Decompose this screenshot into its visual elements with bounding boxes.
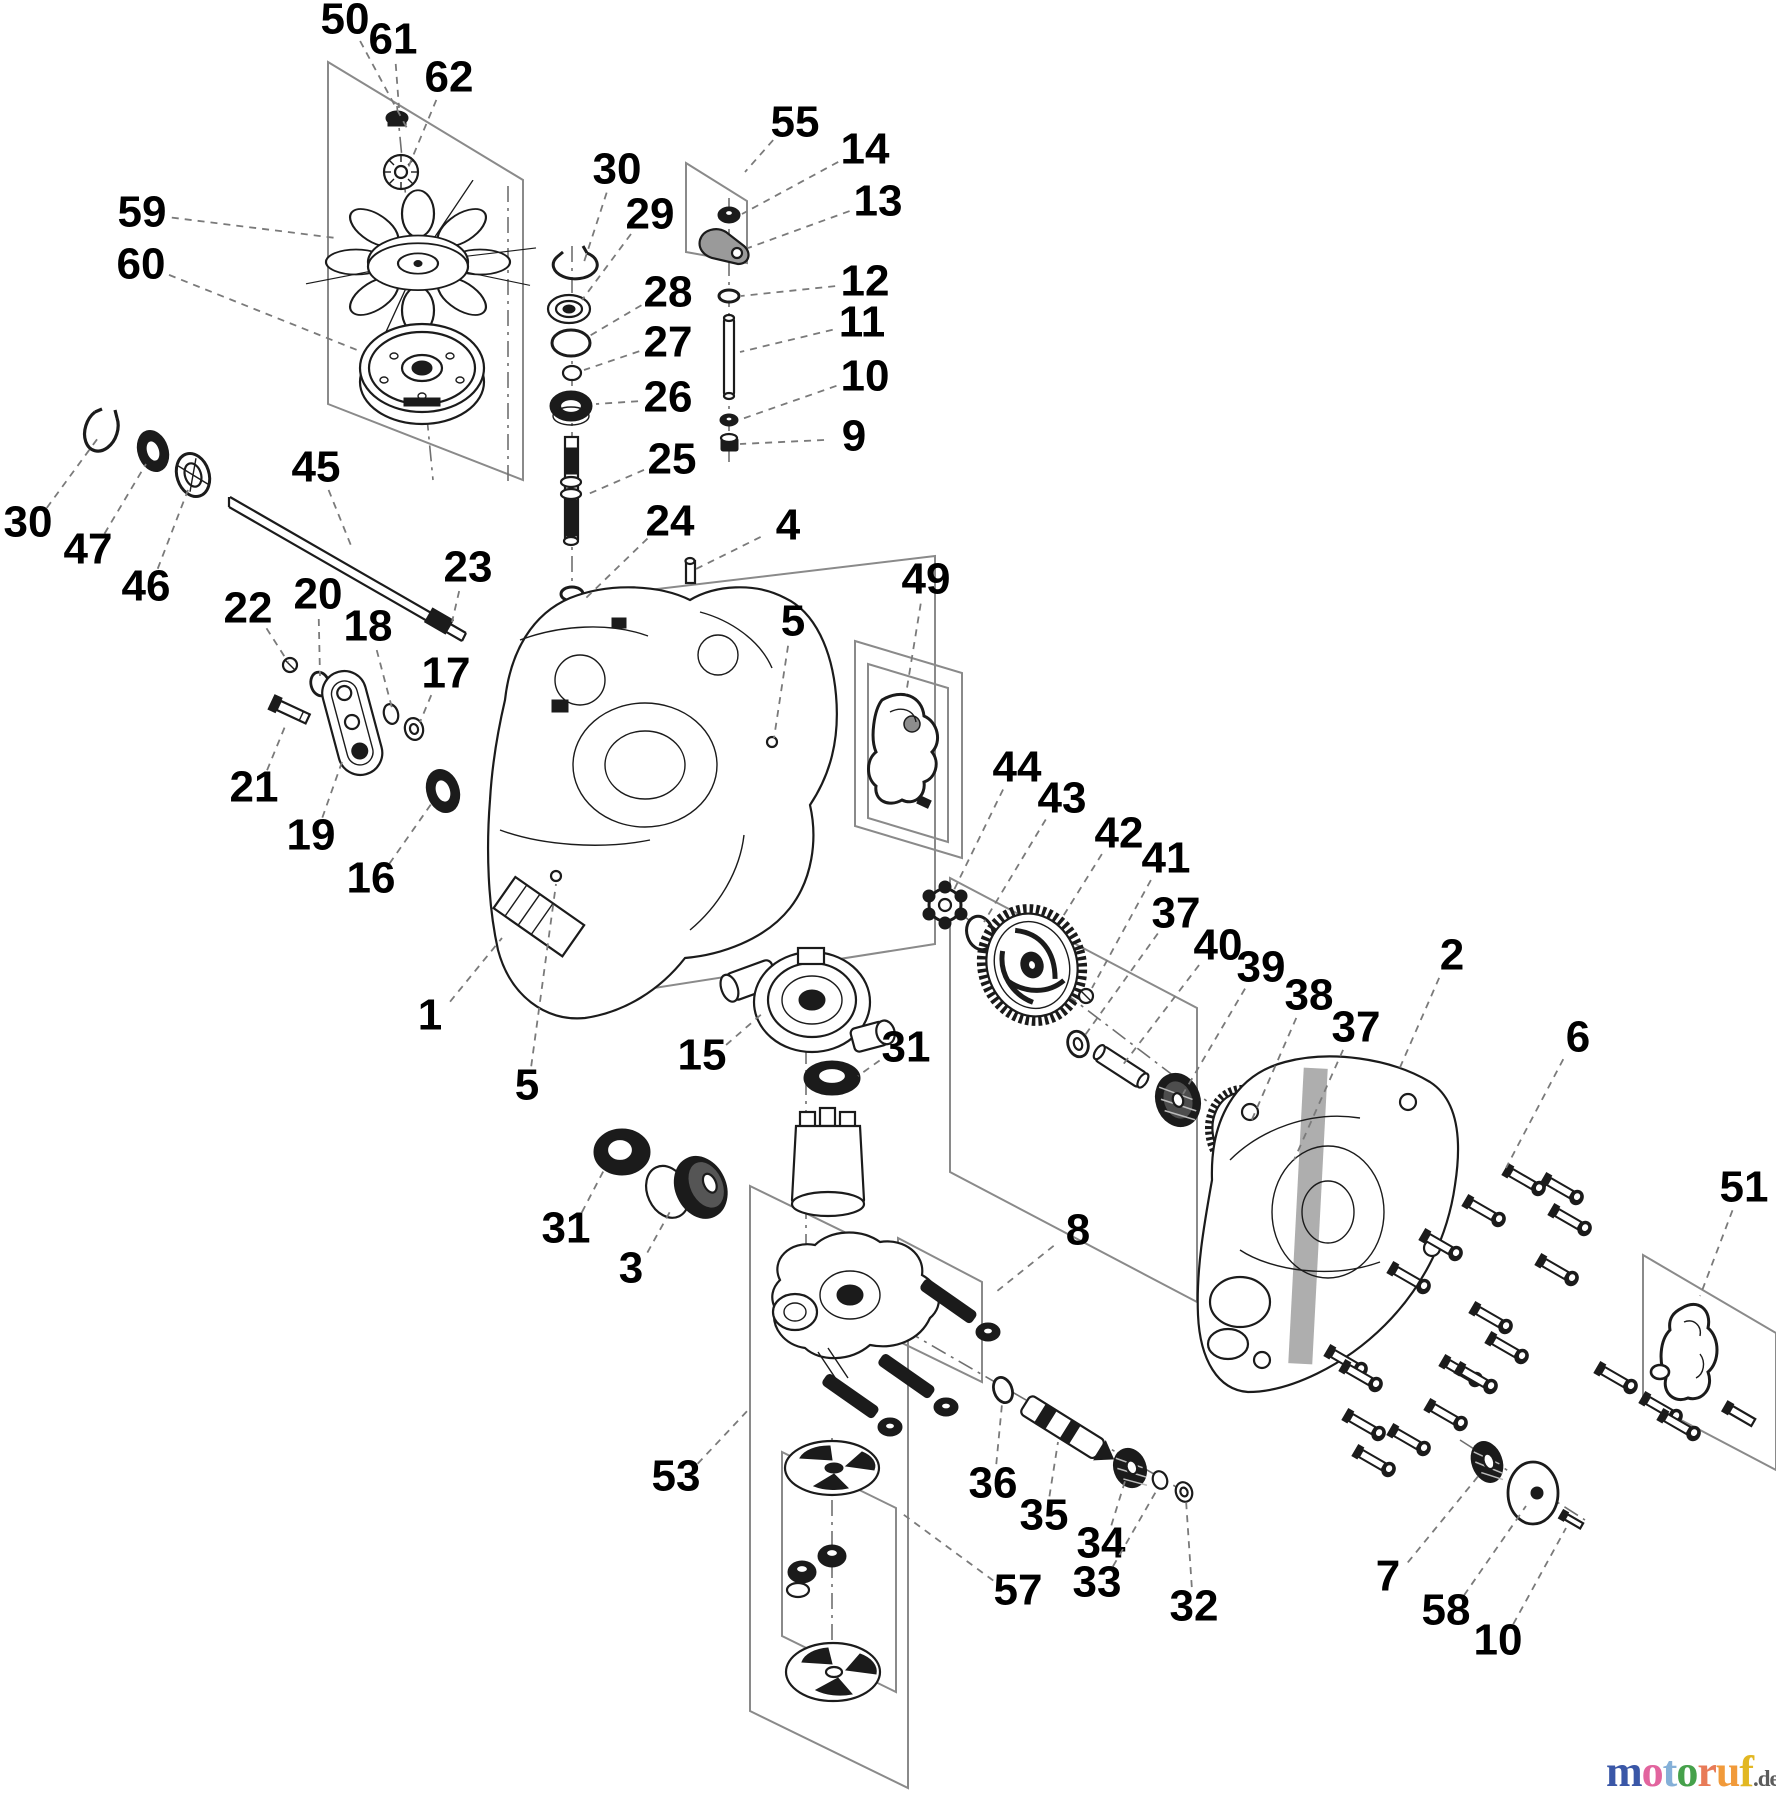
- leader-line-7-60: [1408, 1474, 1480, 1562]
- leader-line-12-16: [741, 286, 835, 296]
- leader-line-26-9: [596, 401, 638, 404]
- callout-5-21: 5: [781, 597, 805, 646]
- callout-42-25: 42: [1095, 809, 1144, 858]
- callout-57-59: 57: [994, 1566, 1043, 1615]
- callouts-layer: 5061625960302928272625242355141312111094…: [4, 0, 1769, 1665]
- snap-ring-30-icon: [553, 246, 597, 279]
- pump-body-15-icon: [717, 948, 897, 1053]
- leader-line-1-46: [450, 938, 502, 1002]
- pulley-icon: [360, 324, 484, 424]
- filter-disc-top-icon: [785, 1441, 879, 1495]
- callout-61-1: 61: [369, 15, 418, 64]
- callout-13-15: 13: [854, 177, 903, 226]
- leader-line-57-59: [900, 1512, 993, 1581]
- leader-line-43-24: [984, 819, 1046, 922]
- callout-30-5: 30: [593, 145, 642, 194]
- dowel-pin-4-icon: [686, 558, 696, 583]
- callout-18-41: 18: [344, 602, 393, 651]
- callout-55-13: 55: [771, 98, 820, 147]
- leader-line-41-26: [1092, 880, 1151, 988]
- cylinder-block-icon: [792, 1108, 864, 1216]
- leader-line-51-34: [1700, 1210, 1732, 1296]
- cone-3-icon: [638, 1143, 737, 1238]
- callout-5-47: 5: [515, 1061, 539, 1110]
- ring-36-icon: [990, 1375, 1016, 1406]
- callout-39-29: 39: [1237, 943, 1286, 992]
- leader-line-10-18: [739, 386, 836, 420]
- pin-11-icon: [724, 315, 734, 399]
- washer-33-icon: [1150, 1469, 1169, 1491]
- leader-line-9-19: [740, 440, 824, 444]
- washer-27-icon: [563, 366, 581, 380]
- leader-line-28-7: [586, 305, 641, 338]
- bearing-46-icon: [171, 449, 215, 501]
- pump-shaft-25-icon: [561, 437, 581, 545]
- leader-line-2-32: [1398, 978, 1439, 1072]
- final-gear-42-icon: [968, 896, 1097, 1034]
- callout-43-24: 43: [1038, 774, 1087, 823]
- watermark-letter: o: [1676, 1747, 1697, 1796]
- nut-14-icon: [718, 207, 740, 223]
- exploded-diagram-page: 5061625960302928272625242355141312111094…: [0, 0, 1776, 1800]
- leader-line-53-53: [698, 1408, 750, 1464]
- callout-8-52: 8: [1066, 1206, 1090, 1255]
- callout-24-11: 24: [646, 497, 695, 546]
- leader-line-17-42: [420, 695, 431, 722]
- callout-35-55: 35: [1020, 1491, 1069, 1540]
- screw-22-icon: [283, 658, 297, 672]
- ring-28-icon: [552, 330, 590, 356]
- callout-29-6: 29: [626, 190, 675, 239]
- leader-line-27-8: [584, 351, 639, 370]
- watermark-suffix: .de: [1753, 1766, 1776, 1791]
- cover-bolt-icon: [1386, 1422, 1434, 1459]
- cover-bolt-icon: [1423, 1397, 1471, 1434]
- screw-41-icon: [1079, 989, 1093, 1003]
- bearing-26-icon: [550, 391, 592, 425]
- gear-34-icon: [1108, 1444, 1152, 1494]
- callout-53-53: 53: [652, 1452, 701, 1501]
- leader-line-62-2: [408, 100, 436, 168]
- callout-38-30: 38: [1285, 971, 1334, 1020]
- nut-32-icon: [1173, 1480, 1195, 1504]
- callout-27-8: 27: [644, 318, 693, 367]
- leader-line-22-39: [267, 628, 288, 662]
- callout-23-12: 23: [444, 543, 493, 592]
- watermark-letter: m: [1606, 1747, 1642, 1796]
- control-plate-19-icon: [317, 666, 387, 780]
- watermark-letter: u: [1716, 1747, 1739, 1796]
- callout-31-50: 31: [542, 1204, 591, 1253]
- callout-25-10: 25: [648, 435, 697, 484]
- leader-line-55-13: [745, 140, 773, 172]
- filter-plate-bottom-icon: [786, 1643, 880, 1701]
- cover-bolt-icon: [1341, 1407, 1389, 1444]
- callout-4-20: 4: [776, 501, 801, 550]
- callout-9-19: 9: [842, 412, 866, 461]
- callout-3-51: 3: [619, 1244, 643, 1293]
- callout-21-43: 21: [230, 763, 279, 812]
- callout-36-54: 36: [969, 1459, 1018, 1508]
- spider-44-icon: [923, 881, 967, 929]
- main-housing-icon: [488, 587, 837, 1018]
- callout-16-45: 16: [347, 854, 396, 903]
- cover-bolt-icon: [1351, 1443, 1399, 1480]
- star-washer-icon: [384, 155, 418, 189]
- callout-51-34: 51: [1720, 1163, 1769, 1212]
- callout-15-48: 15: [678, 1031, 727, 1080]
- leader-line-6-33: [1506, 1059, 1563, 1168]
- leader-line-35-55: [1049, 1442, 1058, 1496]
- ring-12-icon: [719, 290, 739, 302]
- leader-line-15-48: [726, 1012, 764, 1045]
- cover-bolt-icon: [1453, 1360, 1501, 1397]
- callout-19-44: 19: [287, 811, 336, 860]
- leader-line-31-49: [858, 1060, 880, 1076]
- leader-line-42-25: [1062, 854, 1102, 918]
- leader-line-14-14: [742, 162, 838, 214]
- watermark-letter: r: [1697, 1747, 1716, 1796]
- callout-49-22: 49: [902, 555, 951, 604]
- leader-line-49-22: [906, 604, 921, 694]
- cover-bolt-icon: [1461, 1193, 1509, 1230]
- watermark-letter: t: [1663, 1747, 1677, 1796]
- leader-line-23-12: [452, 591, 459, 622]
- leader-line-20-40: [319, 619, 320, 676]
- callout-47-36: 47: [64, 525, 113, 574]
- callout-22-39: 22: [224, 584, 273, 633]
- callout-30-35: 30: [4, 498, 53, 547]
- callout-59-3: 59: [118, 188, 167, 237]
- leader-line-13-15: [748, 211, 850, 248]
- disc-58-icon: [1508, 1462, 1558, 1524]
- callout-14-14: 14: [841, 125, 890, 174]
- motor-shaft-35-icon: [1019, 1395, 1119, 1469]
- gasket-49-icon: [869, 694, 938, 808]
- leader-line-46-37: [158, 490, 188, 569]
- bolt-21-icon: [268, 695, 311, 726]
- leader-line-11-17: [740, 330, 833, 352]
- watermark-letter: f: [1739, 1747, 1753, 1796]
- bearing-31-left-icon: [594, 1129, 650, 1175]
- callout-62-2: 62: [425, 53, 474, 102]
- plug-caps-icon: [787, 1545, 846, 1597]
- callout-37-31: 37: [1332, 1003, 1381, 1052]
- callout-40-28: 40: [1194, 921, 1243, 970]
- cover-bolt-icon: [1539, 1171, 1587, 1208]
- bearing-31-right-icon: [804, 1061, 860, 1095]
- callout-26-9: 26: [644, 373, 693, 422]
- leader-line-45-38: [329, 490, 352, 548]
- callout-10-62: 10: [1474, 1616, 1523, 1665]
- screw-10b-icon: [1558, 1510, 1584, 1531]
- leader-line-10-62: [1513, 1528, 1566, 1624]
- cover-bolt-icon: [1534, 1252, 1582, 1289]
- leader-line-16-45: [389, 800, 434, 864]
- idler-shaft-40-icon: [1091, 1043, 1151, 1090]
- callout-20-40: 20: [294, 570, 343, 619]
- exploded-diagram-canvas: 5061625960302928272625242355141312111094…: [0, 0, 1776, 1800]
- leader-line-19-44: [322, 762, 342, 818]
- leader-line-36-54: [996, 1404, 1002, 1464]
- callout-11-17: 11: [839, 298, 886, 347]
- leader-line-47-36: [105, 464, 146, 534]
- callout-31-49: 31: [882, 1023, 931, 1072]
- callout-10-18: 10: [841, 352, 890, 401]
- callout-41-26: 41: [1142, 834, 1191, 883]
- leader-line-59-3: [172, 218, 336, 238]
- leader-line-44-23: [952, 789, 1003, 894]
- callout-33-57: 33: [1073, 1558, 1122, 1607]
- callout-45-38: 45: [292, 443, 341, 492]
- snap-ring-30-left-icon: [85, 409, 119, 451]
- leader-line-8-52: [996, 1246, 1054, 1292]
- brake-arm-13-icon: [700, 229, 749, 264]
- callout-60-4: 60: [117, 240, 166, 289]
- center-section-8-icon: [772, 1233, 1000, 1436]
- motoruf-watermark-logo: motoruf.de: [1606, 1746, 1776, 1800]
- callout-17-42: 17: [422, 649, 471, 698]
- cover-bolt-icon: [1484, 1330, 1532, 1367]
- pinion-39-icon: [1149, 1068, 1208, 1133]
- callout-44-23: 44: [993, 743, 1042, 792]
- callout-7-60: 7: [1376, 1552, 1400, 1601]
- washer-17-icon: [402, 716, 425, 742]
- callout-46-37: 46: [122, 562, 171, 611]
- side-cover-icon: [1198, 1056, 1458, 1392]
- leader-line-60-4: [169, 275, 362, 352]
- callout-1-46: 1: [418, 991, 442, 1040]
- callout-58-61: 58: [1422, 1586, 1471, 1635]
- bearing-47-icon: [132, 426, 174, 475]
- leader-line-61-1: [396, 64, 399, 108]
- callout-2-32: 2: [1440, 931, 1464, 980]
- watermark-letter: o: [1642, 1747, 1663, 1796]
- bearing-7-icon: [1466, 1437, 1509, 1488]
- callout-28-7: 28: [644, 268, 693, 317]
- leader-line-32-58: [1186, 1500, 1192, 1587]
- cover-bolt-icon: [1547, 1202, 1595, 1239]
- leader-line-25-10: [586, 470, 644, 495]
- nut-9-icon: [721, 434, 738, 451]
- leader-line-40-28: [1122, 965, 1199, 1066]
- cover-bolt-icon: [1593, 1360, 1641, 1397]
- washer-10-icon: [720, 414, 738, 426]
- callout-32-58: 32: [1170, 1582, 1219, 1631]
- leader-line-18-41: [377, 650, 392, 708]
- leader-line-4-20: [694, 537, 761, 570]
- callout-6-33: 6: [1566, 1013, 1590, 1062]
- leader-line-58-61: [1464, 1506, 1526, 1595]
- leader-line-3-51: [647, 1208, 672, 1253]
- callout-50-0: 50: [321, 0, 370, 44]
